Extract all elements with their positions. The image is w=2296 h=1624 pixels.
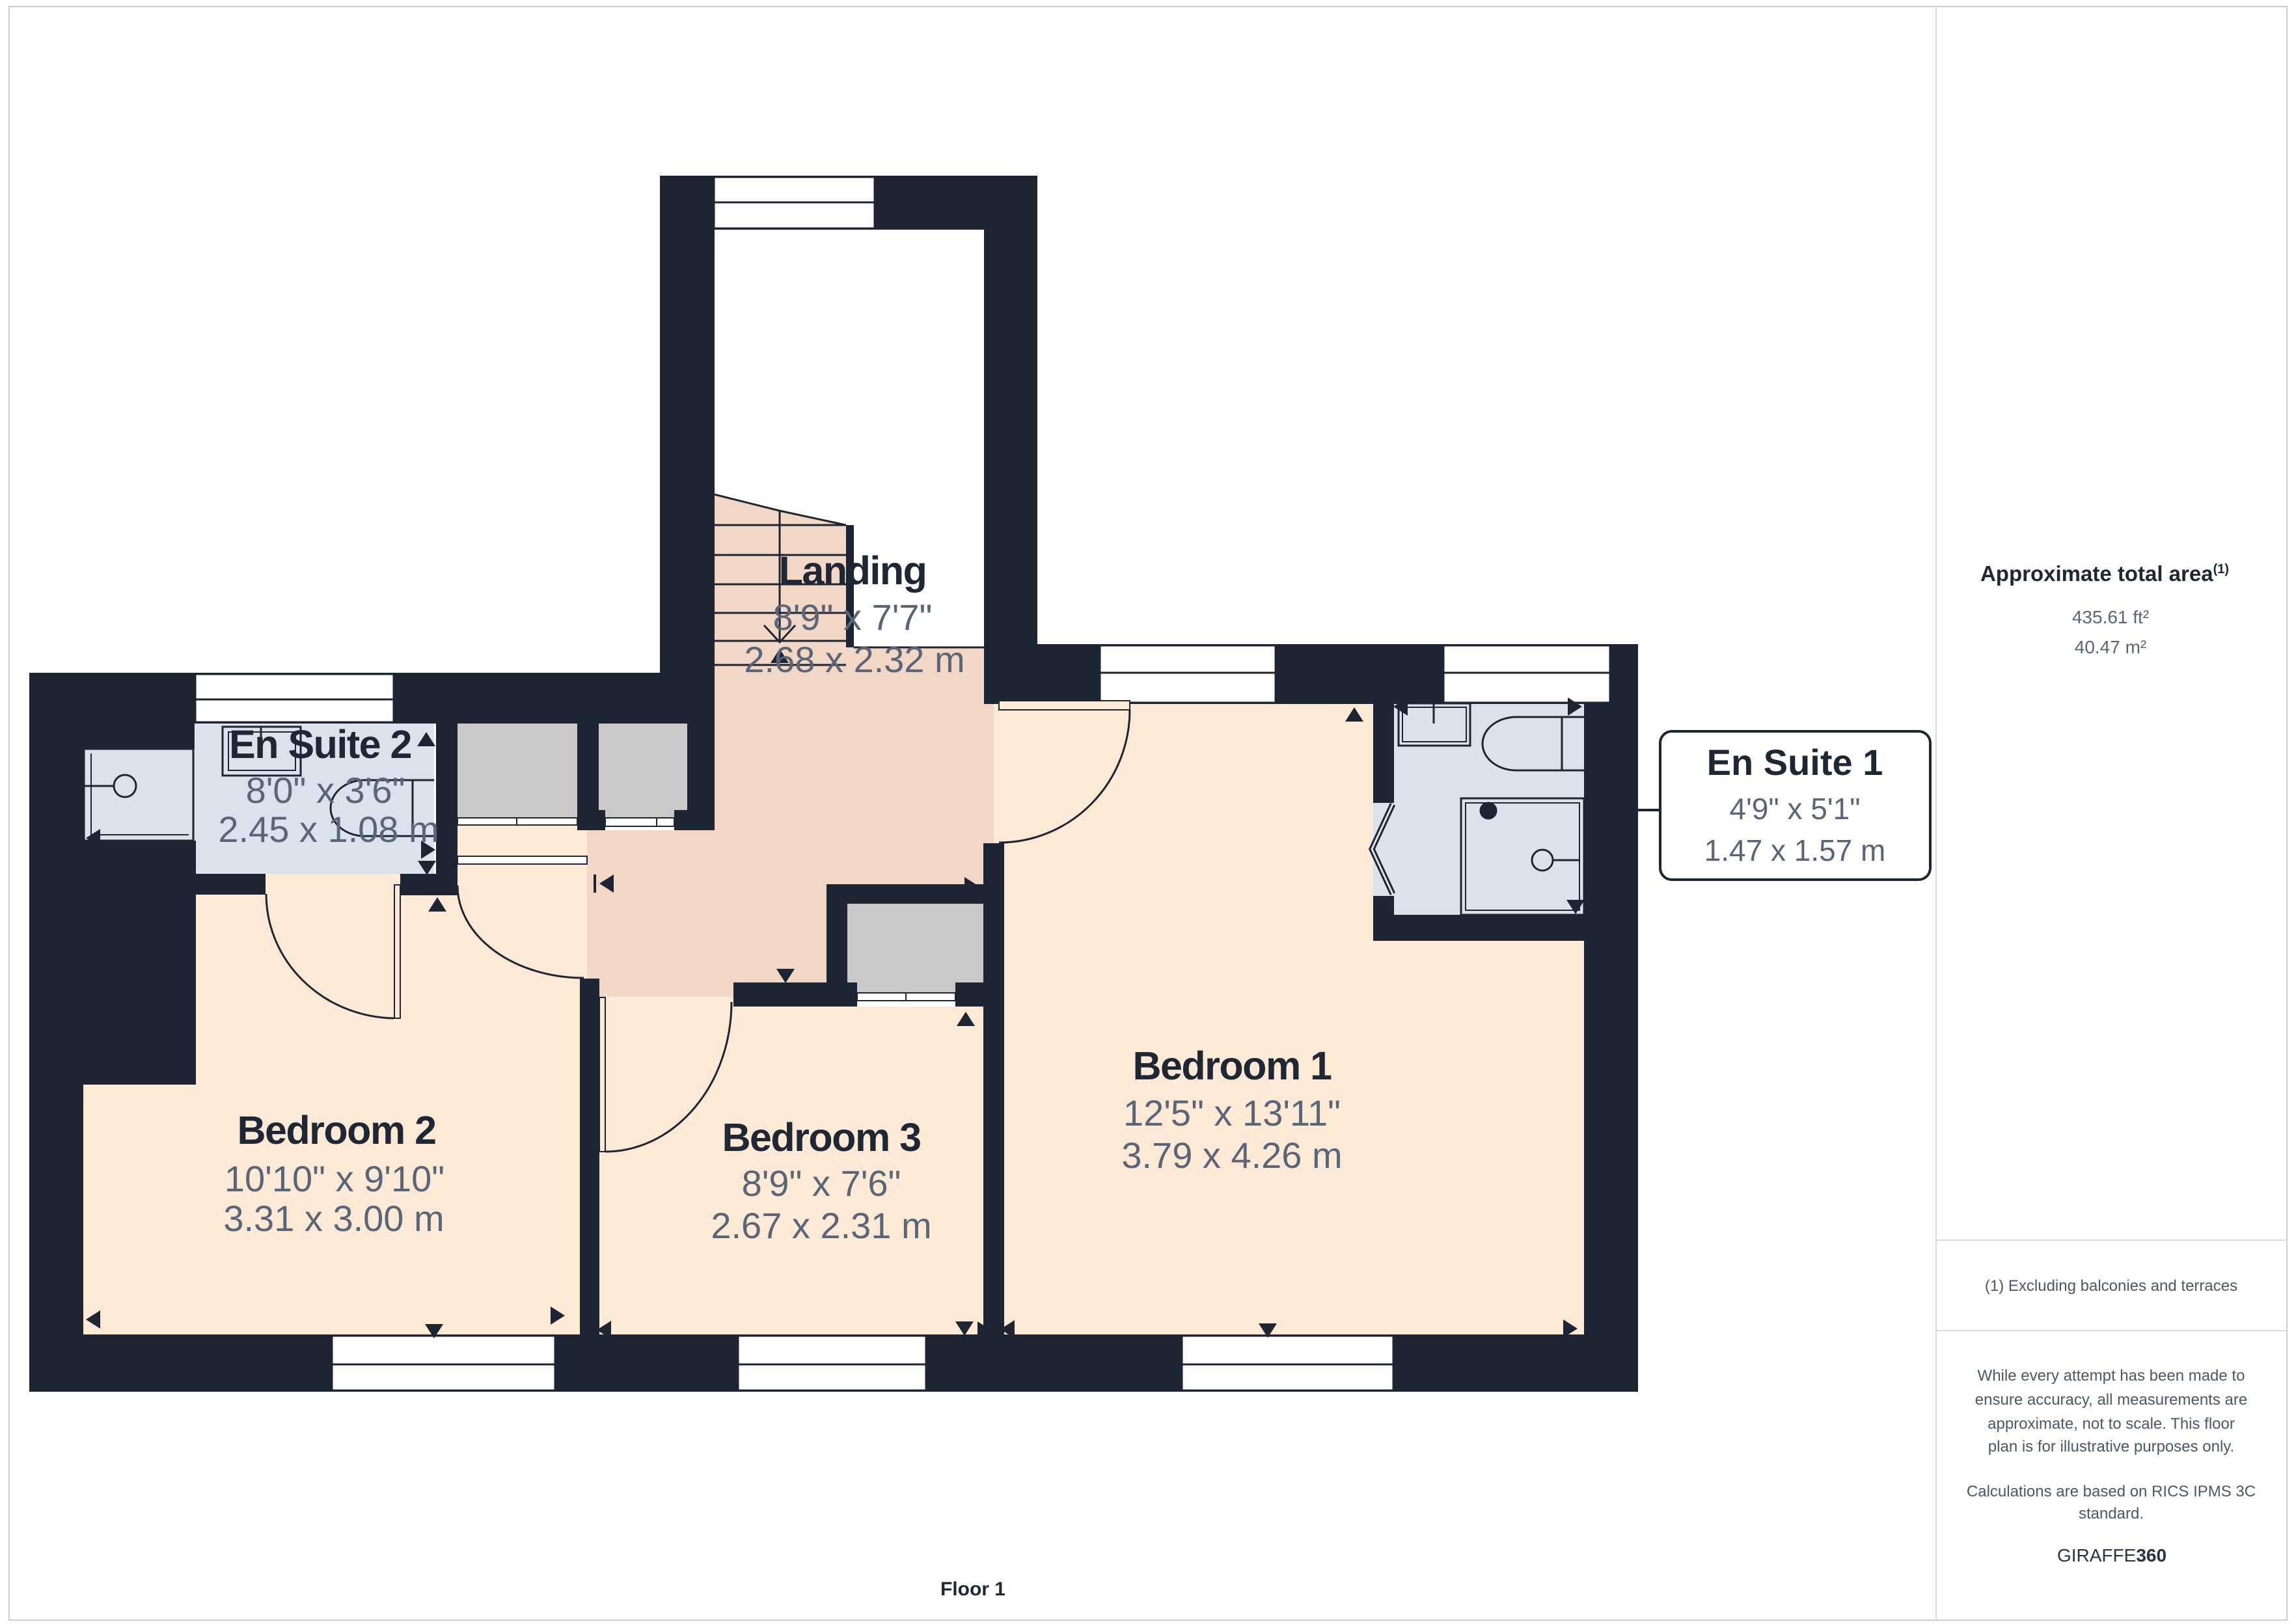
svg-text:8'9" x 7'7": 8'9" x 7'7" <box>773 597 933 638</box>
svg-text:Calculations are based on RICS: Calculations are based on RICS IPMS 3C <box>1967 1483 2256 1500</box>
svg-text:435.61 ft²: 435.61 ft² <box>2072 607 2149 627</box>
svg-text:Approximate total area(1): Approximate total area(1) <box>1980 562 2229 586</box>
svg-text:3.79 x 4.26 m: 3.79 x 4.26 m <box>1121 1135 1342 1176</box>
svg-text:standard.: standard. <box>2079 1505 2144 1522</box>
svg-text:12'5" x 13'11": 12'5" x 13'11" <box>1123 1092 1341 1133</box>
svg-text:10'10" x 9'10": 10'10" x 9'10" <box>225 1158 444 1199</box>
svg-text:1.47 x 1.57 m: 1.47 x 1.57 m <box>1704 833 1886 867</box>
svg-text:40.47 m²: 40.47 m² <box>2075 637 2147 657</box>
svg-text:2.45 x 1.08 m: 2.45 x 1.08 m <box>218 809 439 850</box>
svg-text:8'9" x 7'6": 8'9" x 7'6" <box>742 1163 901 1204</box>
svg-text:Bedroom 1: Bedroom 1 <box>1132 1044 1332 1088</box>
svg-text:approximate, not to scale. Thi: approximate, not to scale. This floor <box>1988 1415 2235 1433</box>
svg-text:En Suite 2: En Suite 2 <box>229 722 411 766</box>
svg-text:2.67 x 2.31 m: 2.67 x 2.31 m <box>711 1205 931 1246</box>
svg-text:Bedroom 3: Bedroom 3 <box>722 1115 920 1159</box>
svg-text:Landing: Landing <box>779 548 927 593</box>
svg-text:2.68 x 2.32 m: 2.68 x 2.32 m <box>744 639 964 680</box>
svg-text:4'9" x 5'1": 4'9" x 5'1" <box>1729 792 1860 826</box>
svg-text:En Suite 1: En Suite 1 <box>1707 742 1883 783</box>
svg-text:8'0" x 3'6": 8'0" x 3'6" <box>246 770 405 811</box>
svg-text:ensure accuracy, all measureme: ensure accuracy, all measurements are <box>1975 1391 2247 1409</box>
svg-text:GIRAFFE360: GIRAFFE360 <box>2057 1545 2166 1565</box>
svg-text:Bedroom 2: Bedroom 2 <box>237 1108 435 1152</box>
svg-text:While every attempt has been m: While every attempt has been made to <box>1978 1367 2245 1385</box>
svg-text:3.31 x 3.00 m: 3.31 x 3.00 m <box>223 1198 444 1239</box>
svg-text:plan is for illustrative purpo: plan is for illustrative purposes only. <box>1988 1438 2234 1455</box>
svg-text:(1) Excluding balconies and te: (1) Excluding balconies and terraces <box>1985 1277 2237 1295</box>
svg-text:Floor 1: Floor 1 <box>940 1578 1005 1600</box>
